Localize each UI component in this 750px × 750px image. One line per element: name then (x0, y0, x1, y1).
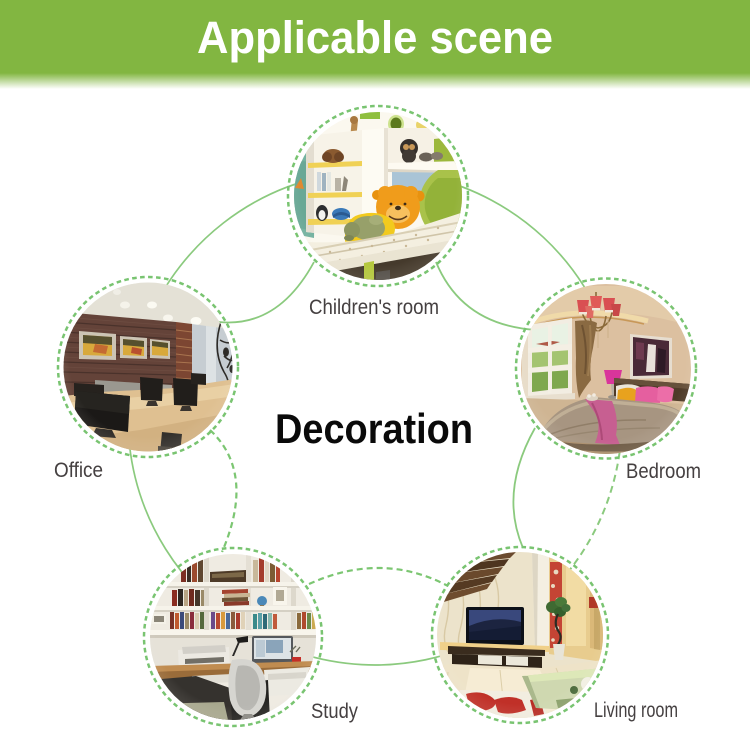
svg-text:Living room: Living room (594, 699, 678, 722)
svg-text:Bedroom: Bedroom (626, 460, 701, 483)
svg-text:Applicable scene: Applicable scene (197, 12, 553, 63)
svg-text:Office: Office (54, 459, 103, 482)
svg-text:Decoration: Decoration (275, 405, 473, 452)
svg-text:Children's room: Children's room (309, 296, 439, 319)
svg-text:Study: Study (311, 700, 358, 723)
